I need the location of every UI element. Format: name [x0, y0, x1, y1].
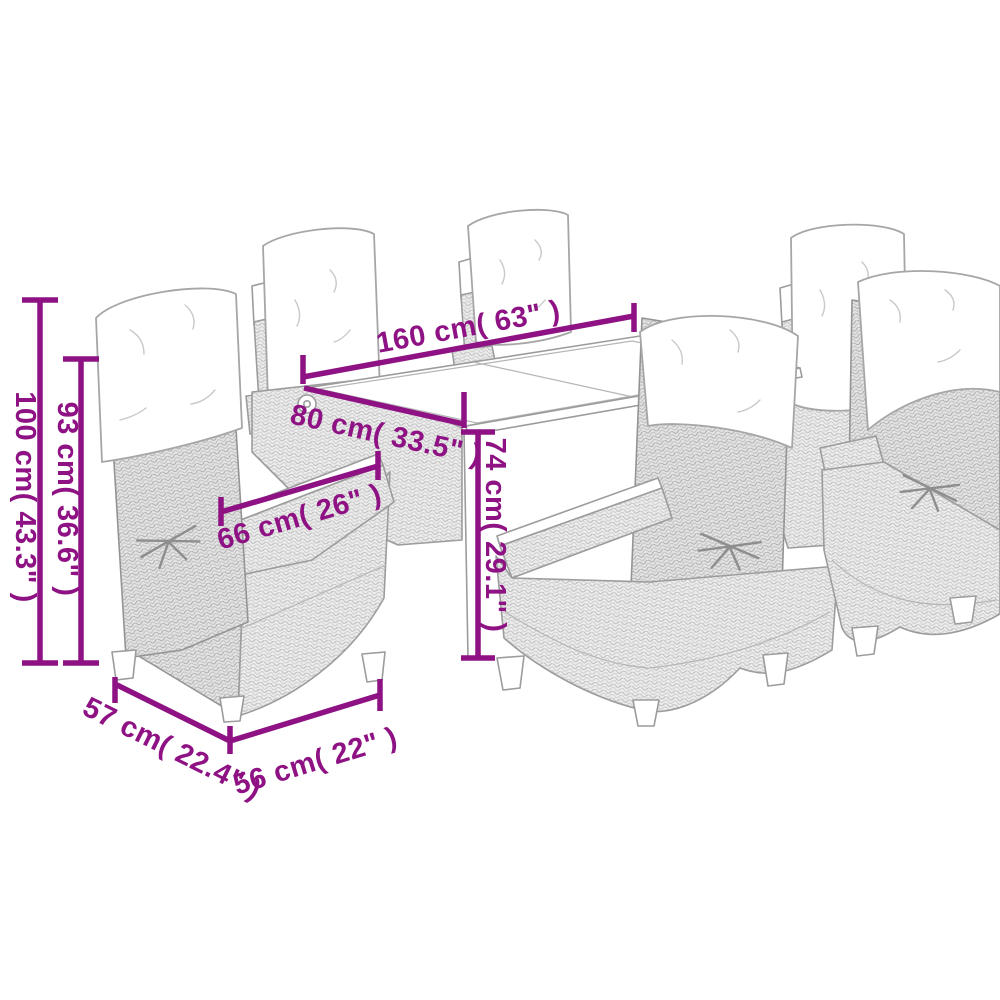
chair-leg: [950, 596, 976, 624]
diagram-canvas: 100 cm( 43.3" ) 93 cm( 36.6" ) 160 cm( 6…: [0, 0, 1000, 1000]
dim-chair-total-height: 100 cm( 43.3" ): [9, 300, 58, 663]
chair-leg: [633, 700, 659, 726]
backrest-cushion: [96, 288, 242, 462]
chair-leg: [220, 696, 244, 722]
backrest-cushion: [263, 228, 380, 404]
chair-leg: [362, 652, 385, 682]
chair-leg: [763, 653, 788, 686]
dim-label-table-height: 74 cm( 29.1" ): [479, 438, 511, 633]
dimension-diagram: 100 cm( 43.3" ) 93 cm( 36.6" ) 160 cm( 6…: [0, 0, 1000, 1000]
chair-leg: [112, 650, 136, 680]
chair-leg: [497, 656, 524, 690]
chair-leg: [852, 626, 878, 656]
dim-label-chair-backrest-height: 93 cm( 36.6" ): [51, 402, 83, 597]
dim-label-chair-total-height: 100 cm( 43.3" ): [9, 391, 41, 602]
dim-chair-backrest-height: 93 cm( 36.6" ): [51, 359, 99, 663]
